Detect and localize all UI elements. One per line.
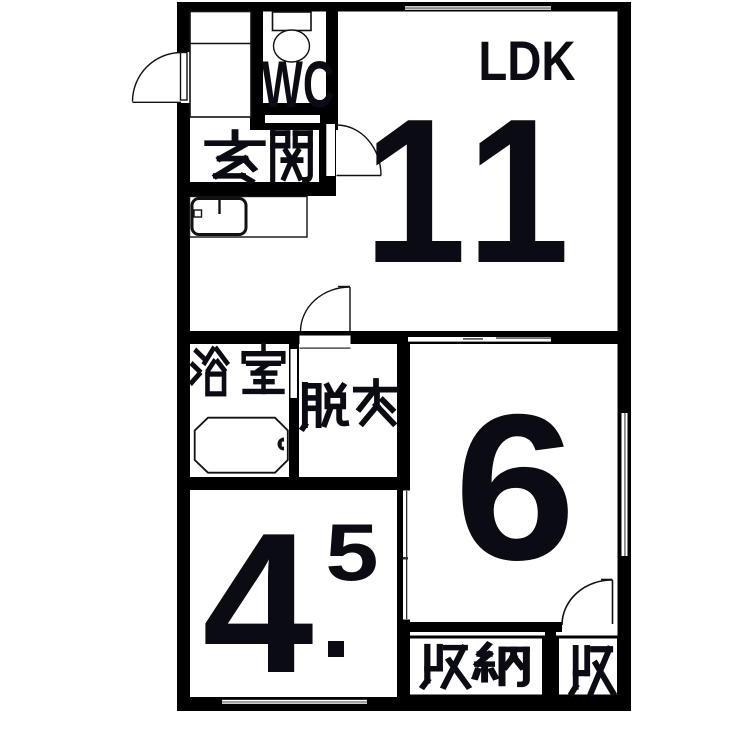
svg-text:4: 4 <box>202 492 313 715</box>
svg-text:5: 5 <box>325 507 378 598</box>
svg-text:WC: WC <box>262 47 335 121</box>
svg-text:6: 6 <box>454 372 575 604</box>
svg-text:11: 11 <box>364 77 580 307</box>
